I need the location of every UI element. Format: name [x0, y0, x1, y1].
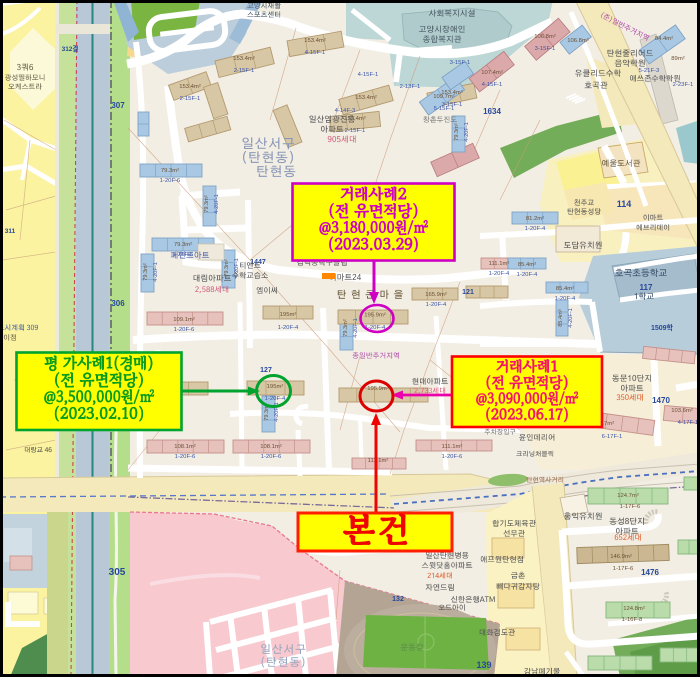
svg-text:132: 132 [392, 596, 404, 603]
svg-text:2-15F-1: 2-15F-1 [345, 128, 366, 134]
svg-text:109.7m²: 109.7m² [433, 94, 455, 100]
svg-text:4-20F-1: 4-20F-1 [214, 194, 220, 214]
svg-text:107.4m²: 107.4m² [481, 70, 503, 76]
svg-text:79.3m²: 79.3m² [161, 168, 179, 174]
svg-text:85.4m²: 85.4m² [558, 309, 564, 327]
svg-text:1-20F-4: 1-20F-4 [525, 226, 546, 232]
svg-text:311: 311 [5, 228, 16, 235]
svg-text:1-20F-6: 1-20F-6 [174, 327, 195, 333]
svg-text:85.4m²: 85.4m² [518, 262, 536, 268]
svg-text:4-20F-1: 4-20F-1 [353, 318, 359, 338]
svg-text:79.3m²: 79.3m² [454, 123, 460, 141]
svg-text:2-13F-1: 2-13F-1 [400, 84, 421, 90]
svg-text:306: 306 [111, 299, 125, 308]
svg-text:124.7m²: 124.7m² [617, 493, 639, 499]
svg-text:81.2m²: 81.2m² [526, 216, 544, 222]
svg-text:153.4m²: 153.4m² [344, 116, 366, 122]
svg-text:89m²: 89m² [671, 56, 684, 62]
svg-text:6-17F-1: 6-17F-1 [602, 434, 623, 440]
svg-text:1-20F-4: 1-20F-4 [426, 302, 447, 308]
svg-text:4-20F-1: 4-20F-1 [153, 262, 159, 282]
svg-text:1-20F-4: 1-20F-4 [489, 271, 510, 277]
svg-text:2-15F-1: 2-15F-1 [234, 68, 255, 74]
svg-text:4-15F-1: 4-15F-1 [482, 82, 503, 88]
svg-text:1-20F-4: 1-20F-4 [517, 272, 538, 278]
svg-text:307: 307 [111, 101, 125, 110]
svg-text:1-17F-6: 1-17F-6 [620, 504, 641, 510]
svg-text:1-20F-6: 1-20F-6 [175, 454, 196, 460]
svg-text:1-20F-6: 1-20F-6 [261, 454, 282, 460]
svg-text:2-23F-1: 2-23F-1 [673, 82, 694, 88]
svg-text:111.1m²: 111.1m² [489, 261, 510, 267]
svg-text:85.4m²: 85.4m² [556, 286, 574, 292]
svg-text:146.9m²: 146.9m² [610, 554, 632, 560]
svg-text:111.1m²: 111.1m² [368, 458, 389, 464]
svg-text:79.3m²: 79.3m² [204, 195, 210, 213]
svg-text:1-17F-6: 1-17F-6 [613, 566, 634, 572]
svg-text:103.6m²: 103.6m² [671, 408, 693, 414]
svg-text:108.1m²: 108.1m² [260, 444, 282, 450]
svg-text:4-20F-1: 4-20F-1 [568, 308, 574, 328]
svg-text:195.9m²: 195.9m² [367, 386, 389, 392]
svg-text:127: 127 [260, 367, 272, 374]
svg-text:79.3m²: 79.3m² [143, 263, 149, 281]
svg-text:153.4m²: 153.4m² [304, 38, 326, 44]
svg-text:139: 139 [476, 660, 491, 670]
svg-text:195.9m²: 195.9m² [364, 313, 386, 319]
svg-text:1476: 1476 [641, 568, 659, 577]
svg-text:153.4m²: 153.4m² [355, 95, 377, 101]
svg-text:4-15F-1: 4-15F-1 [305, 50, 326, 56]
svg-text:3-15F-1: 3-15F-1 [535, 46, 556, 52]
svg-text:106.8m²: 106.8m² [534, 34, 556, 40]
svg-text:4-15F-1: 4-15F-1 [358, 72, 379, 78]
svg-text:1509학: 1509학 [651, 323, 674, 332]
svg-text:1634: 1634 [483, 107, 501, 116]
svg-text:1-20F-4: 1-20F-4 [265, 396, 286, 402]
svg-text:114: 114 [617, 199, 632, 209]
svg-text:165.9m²: 165.9m² [425, 292, 447, 298]
svg-text:4-17F-1: 4-17F-1 [678, 420, 699, 426]
svg-text:1470: 1470 [652, 396, 670, 405]
svg-text:111.1m²: 111.1m² [442, 444, 463, 450]
svg-text:79.3m²: 79.3m² [224, 259, 230, 277]
svg-text:5-15F-1: 5-15F-1 [434, 106, 455, 112]
svg-text:195m²: 195m² [267, 384, 284, 390]
svg-text:4-20F-1: 4-20F-1 [234, 258, 240, 278]
svg-text:121: 121 [462, 289, 474, 296]
svg-text:1-16F-8: 1-16F-8 [622, 617, 643, 623]
svg-text:153.4m²: 153.4m² [179, 84, 201, 90]
svg-text:1-20F-6: 1-20F-6 [442, 454, 463, 460]
svg-text:117: 117 [640, 283, 653, 292]
svg-text:2-15F-1: 2-15F-1 [180, 96, 201, 102]
svg-text:79.3m²: 79.3m² [174, 242, 192, 248]
svg-text:195m²: 195m² [280, 312, 297, 318]
svg-text:106.8m²: 106.8m² [567, 38, 589, 44]
svg-text:84.4m²: 84.4m² [655, 36, 673, 42]
svg-text:1-20F-6: 1-20F-6 [160, 178, 181, 184]
svg-text:3-15F-1: 3-15F-1 [450, 60, 471, 66]
svg-text:1-20F-4: 1-20F-4 [278, 325, 299, 331]
svg-text:124.8m²: 124.8m² [623, 606, 645, 612]
svg-text:5-21F-3: 5-21F-3 [639, 68, 660, 74]
svg-text:108.1m²: 108.1m² [174, 444, 196, 450]
svg-text:4-14F-3: 4-14F-3 [335, 108, 356, 114]
svg-text:305: 305 [109, 567, 126, 578]
svg-text:79.3m²: 79.3m² [343, 319, 349, 337]
svg-text:109.1m²: 109.1m² [173, 317, 195, 323]
svg-text:312결: 312결 [62, 44, 79, 53]
svg-text:4-20F-1: 4-20F-1 [464, 122, 470, 142]
svg-text:1-20F-4: 1-20F-4 [555, 296, 576, 302]
svg-text:153.4m²: 153.4m² [233, 56, 255, 62]
